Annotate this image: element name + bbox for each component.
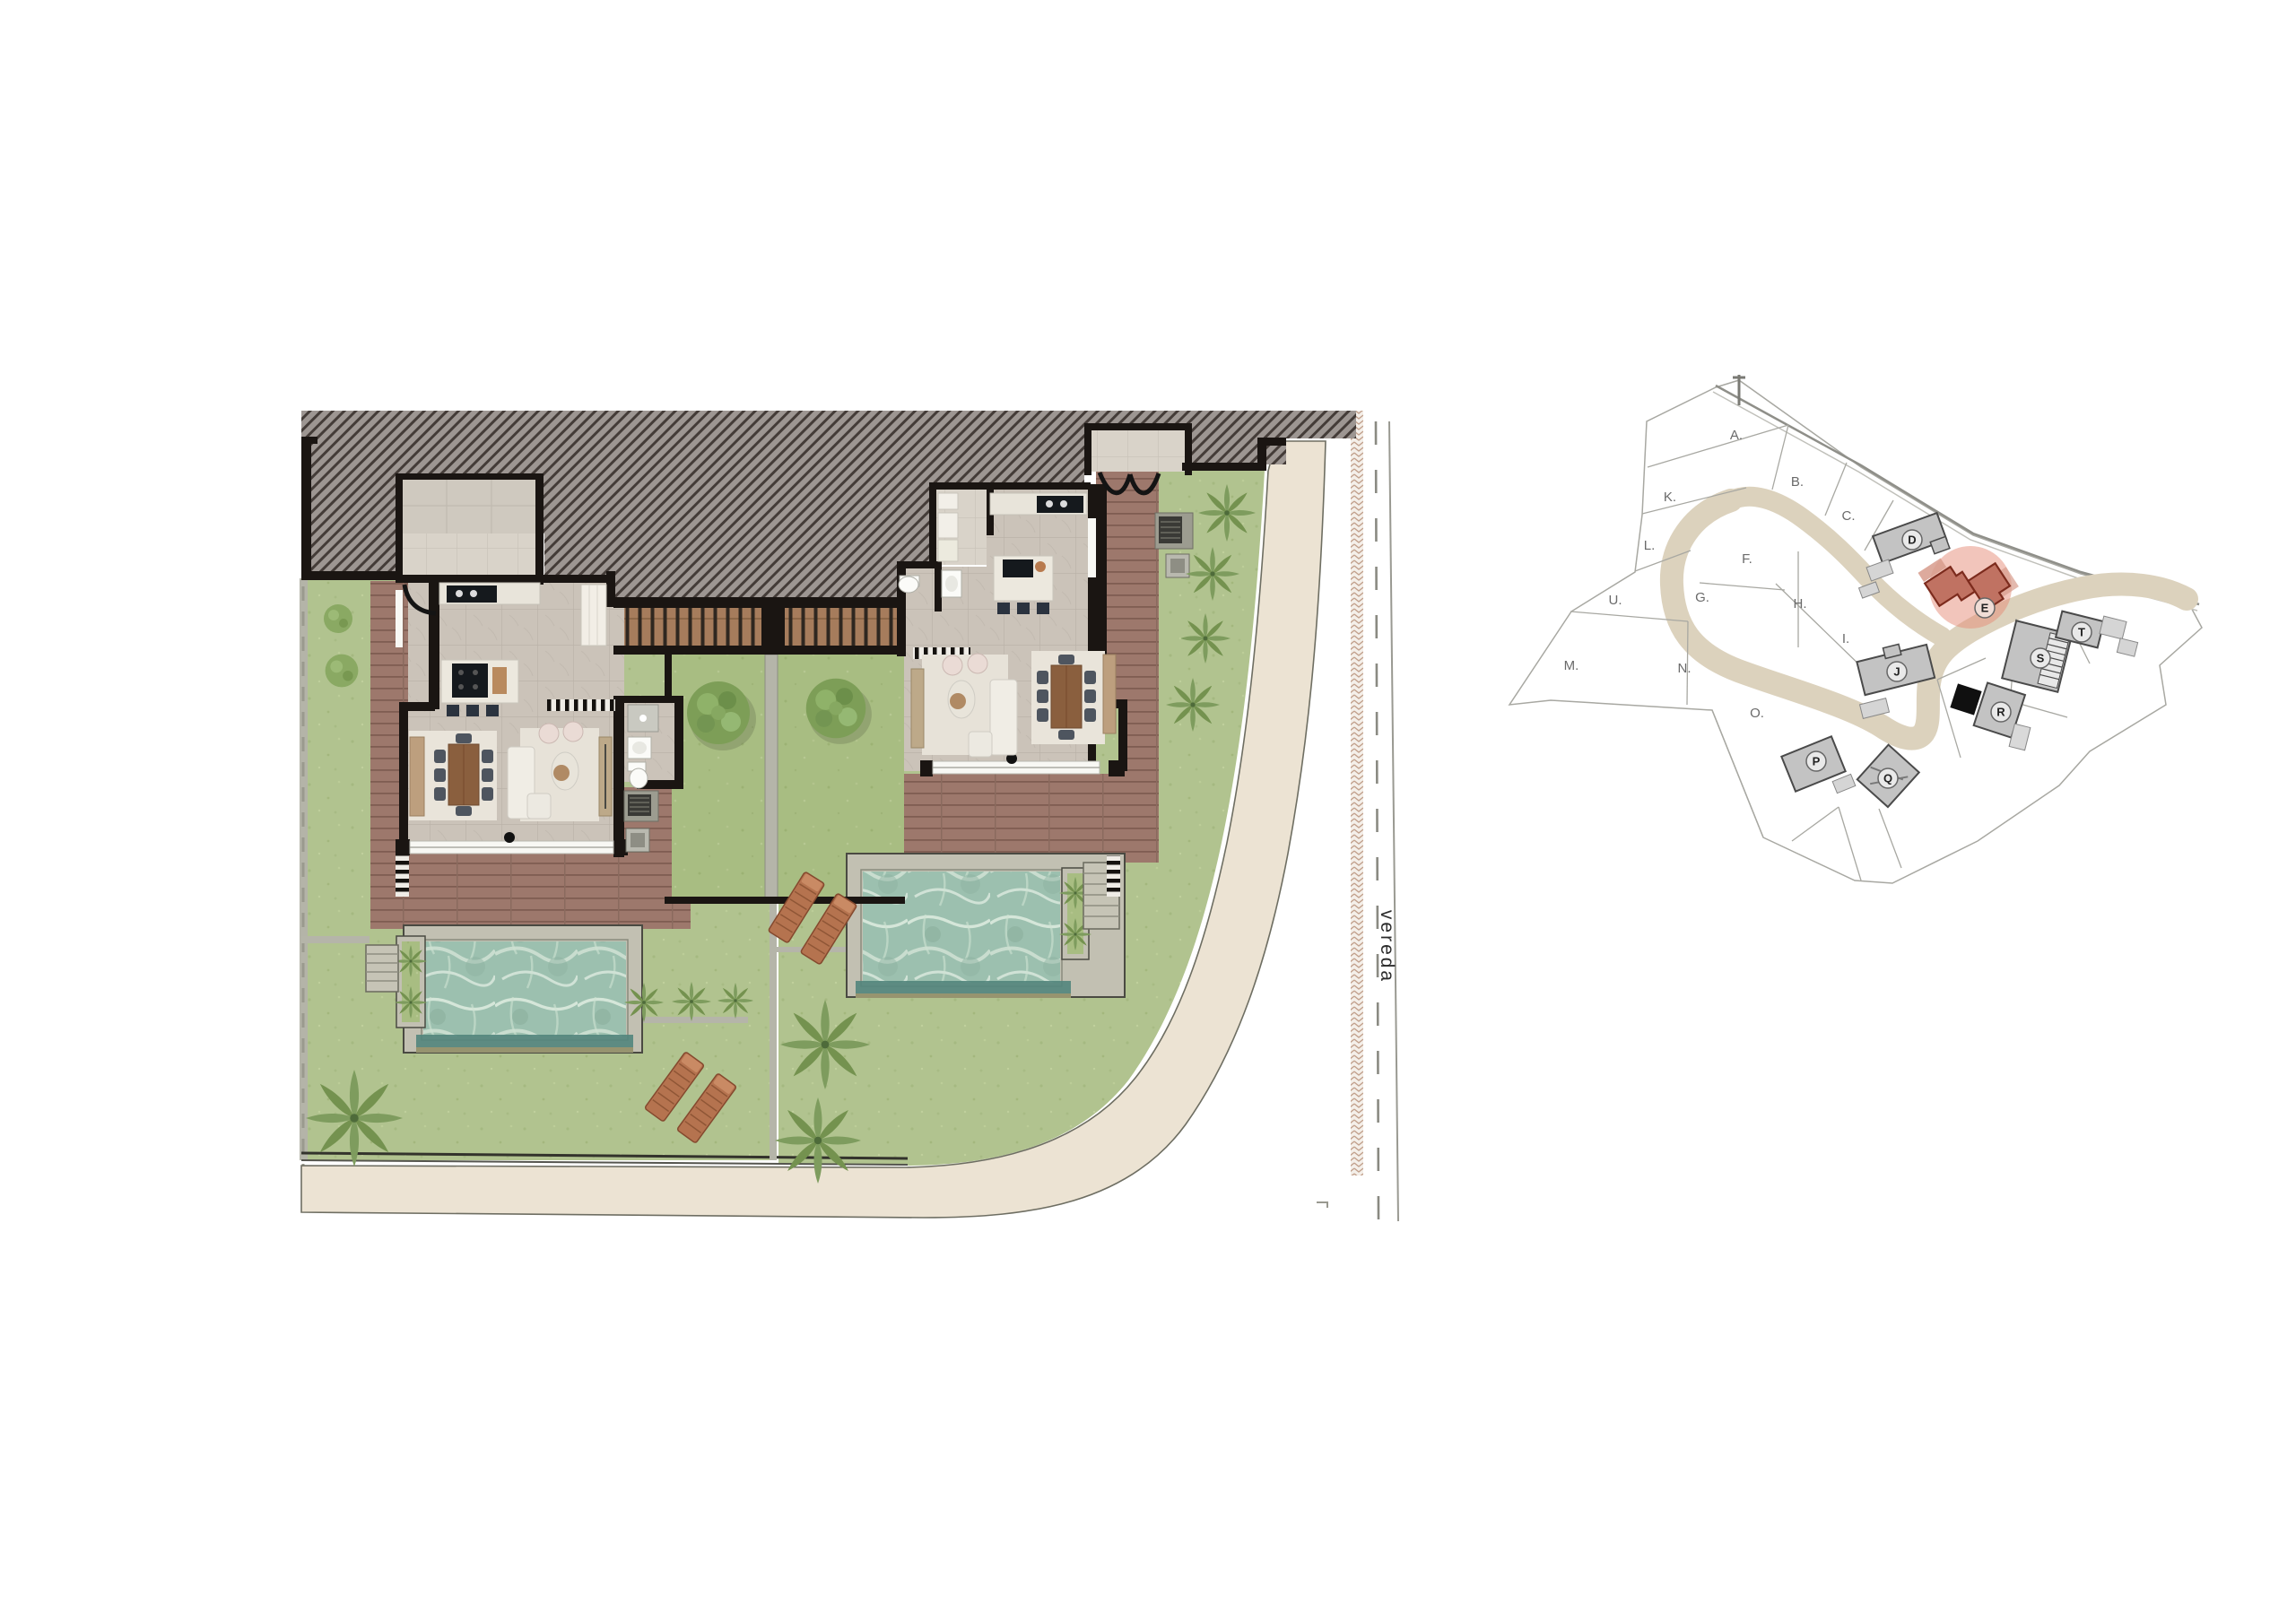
pool-1-water (423, 941, 626, 1037)
plot-label-h: H. (1794, 596, 1807, 612)
villa2-porch (1091, 430, 1185, 472)
vereda-outer-line (1389, 421, 1398, 1221)
plot-label-l: L. (1644, 538, 1656, 553)
palm-tree (780, 1000, 870, 1089)
villa1-entry (402, 533, 535, 577)
plot-label-k: K. (1664, 490, 1676, 505)
lot-divider (770, 898, 777, 1160)
vereda-edge-strip (1351, 411, 1363, 1175)
plot-label-b: B. (1791, 474, 1804, 490)
vereda-centerline (1376, 421, 1378, 1221)
plot-label-o: O. (1750, 706, 1764, 721)
minimap: A.B.C.K.L.F.G.U.H.I.M.N.O. DEJPQRST (1509, 375, 2202, 883)
pool-1 (366, 925, 642, 1053)
pool-1-steps (366, 945, 398, 992)
site-plan-canvas: vereda (0, 0, 2296, 1622)
door-pivot-1 (504, 832, 515, 843)
plot-label-u: U. (1609, 593, 1622, 608)
palm-tree (306, 1070, 403, 1167)
svg-text:E: E (1981, 602, 1989, 615)
svg-text:Q: Q (1883, 772, 1892, 785)
building-label-j: J (1887, 662, 1907, 681)
building-label-p: P (1806, 751, 1826, 771)
villa1-step-marks (396, 855, 409, 897)
villa1-south-deck (370, 854, 691, 929)
building-label-d: D (1902, 530, 1922, 550)
svg-text:J: J (1893, 665, 1900, 679)
main-plan: vereda (300, 411, 1398, 1221)
svg-text:R: R (1996, 706, 2005, 719)
building-label-t: T (2072, 622, 2092, 642)
building-label-q: Q (1878, 768, 1898, 788)
villa2-step-marks (1107, 855, 1120, 897)
building-label-e: E (1975, 598, 1995, 618)
louvre-screen-left (617, 608, 762, 646)
louvre-screen-right (785, 608, 904, 646)
plot-label-n: N. (1678, 661, 1692, 676)
svg-text:P: P (1813, 755, 1821, 768)
svg-text:T: T (2078, 626, 2085, 639)
courtyard-divider (765, 655, 778, 900)
pool-2 (847, 854, 1125, 998)
svg-text:D: D (1908, 533, 1916, 547)
svg-text:S: S (2037, 652, 2045, 665)
building-label-s: S (2031, 648, 2050, 668)
pool-2-water (863, 872, 1060, 983)
palm-tree (775, 1097, 861, 1184)
plot-label-f: F. (1742, 551, 1752, 567)
plot-label-a: A. (1730, 428, 1743, 443)
plot-label-m: M. (1564, 658, 1579, 673)
villa1-slat-row (547, 699, 615, 711)
plot-label-g: G. (1695, 590, 1709, 605)
garden-wall-1 (301, 936, 370, 943)
corner-mark (1317, 1202, 1327, 1208)
building-label-r: R (1991, 702, 2011, 722)
road-label: vereda (1377, 910, 1397, 984)
plot-label-i: I. (1842, 631, 1849, 646)
plot-label-c: C. (1842, 508, 1856, 524)
